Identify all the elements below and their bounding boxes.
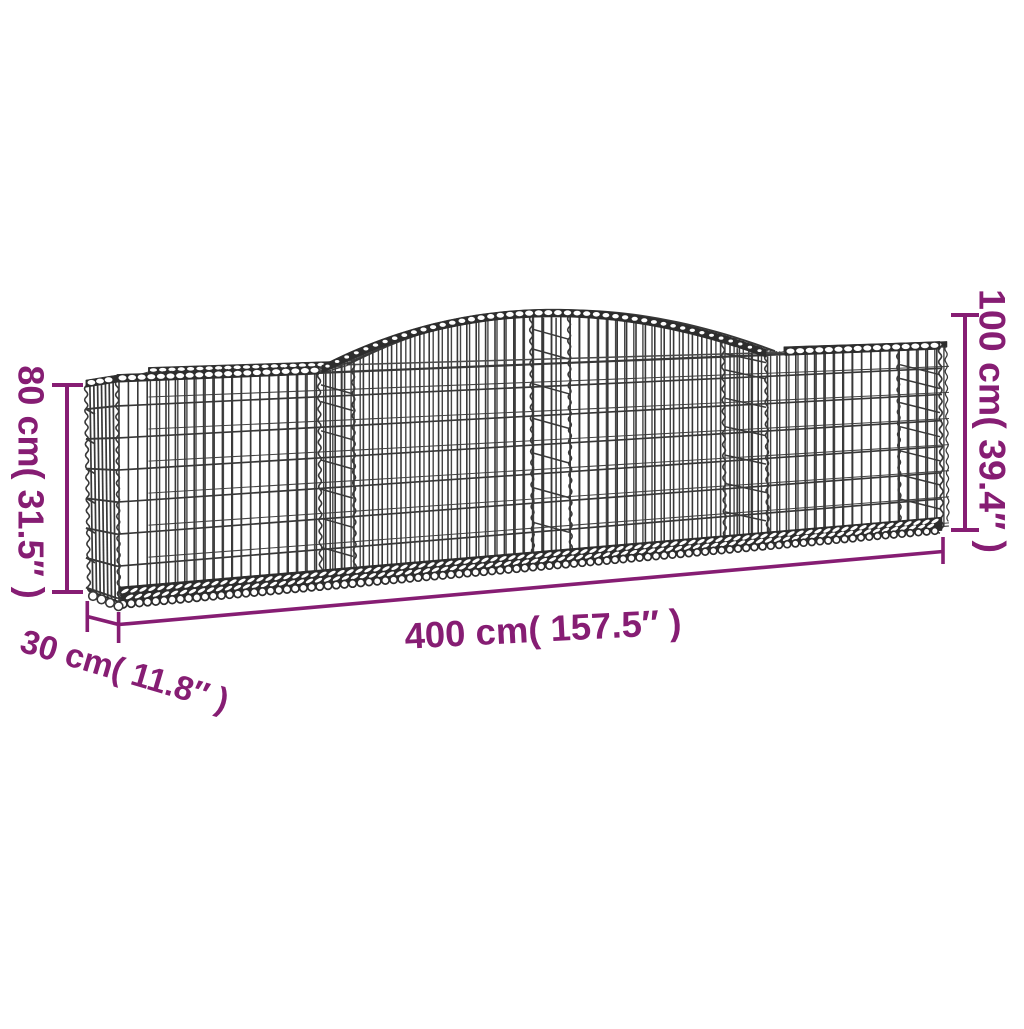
svg-text:80 cm( 31.5″ ): 80 cm( 31.5″ ) (11, 365, 52, 598)
svg-text:100 cm( 39.4″ ): 100 cm( 39.4″ ) (971, 289, 1013, 553)
